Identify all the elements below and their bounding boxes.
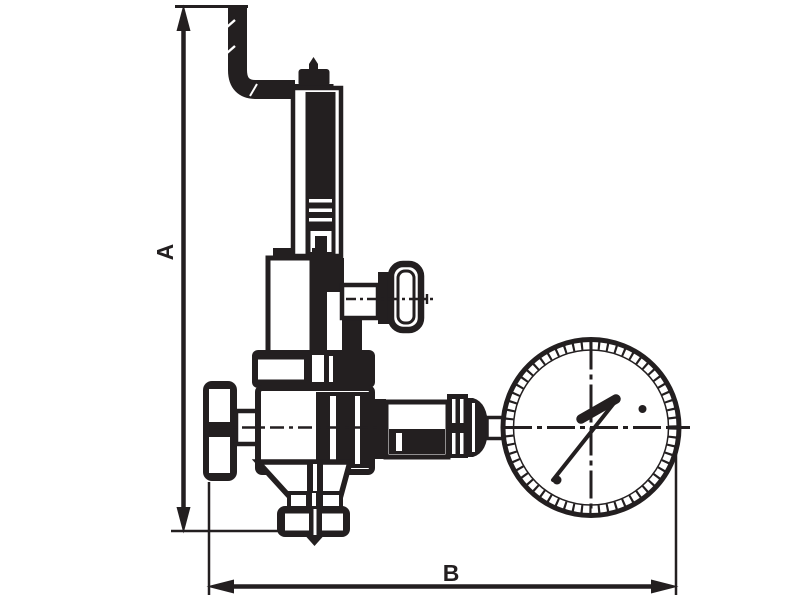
yoke-column — [312, 248, 327, 354]
drawing-canvas: A — [0, 0, 800, 598]
spring-coil-slit — [309, 199, 332, 203]
outlet-cap — [467, 398, 488, 457]
handle-neck — [342, 285, 378, 318]
yoke-lower-column — [342, 316, 362, 353]
flange-window — [258, 360, 304, 380]
union-window — [209, 437, 230, 473]
cap-slit — [472, 403, 475, 452]
mid-flange — [252, 350, 375, 388]
guide-block — [315, 236, 327, 248]
body-right-slit — [355, 396, 360, 464]
spring-housing — [293, 88, 341, 256]
cap-nut — [299, 69, 330, 86]
cylinder-slit — [396, 433, 402, 451]
nut-slit — [460, 433, 464, 454]
flange-slit — [312, 355, 324, 382]
nut-slit — [452, 399, 456, 423]
flange-stem-slit — [314, 509, 317, 535]
pipe-path — [238, 8, 296, 90]
spring-column — [306, 92, 336, 254]
dimension-b-label: B — [443, 560, 460, 586]
dial-marker-dot — [639, 405, 647, 413]
yoke-panel — [268, 258, 312, 354]
arrowhead-left — [207, 580, 235, 594]
outlet-nut — [447, 394, 468, 458]
outlet-union — [386, 394, 504, 458]
spring-coil-slit — [309, 218, 332, 222]
neck-stem-slit — [312, 493, 316, 507]
vent-pipe-elbow — [227, 8, 295, 96]
needle-counterweight — [553, 476, 562, 485]
body-taper — [258, 462, 350, 495]
nut-slit — [460, 399, 464, 423]
union-window — [209, 389, 230, 422]
t-knob-outer — [391, 264, 421, 330]
arrowhead-up — [177, 5, 191, 32]
taper-stem-slit — [313, 464, 317, 494]
inlet-union — [203, 381, 260, 481]
bottom-flange-assembly — [258, 462, 350, 546]
drain-tip — [306, 537, 323, 547]
arrowhead-right — [651, 580, 679, 594]
valve-technical-drawing: A — [0, 0, 800, 598]
pressure-gauge — [503, 340, 690, 516]
body-internal-slit — [330, 396, 336, 464]
flange-window — [285, 514, 309, 531]
side-handle — [342, 264, 433, 330]
flange-slit — [329, 356, 333, 382]
spring-coil-slit — [309, 209, 332, 213]
flange-window — [322, 514, 343, 531]
adjusting-stem-cap — [295, 57, 334, 90]
nut-slit — [452, 433, 456, 454]
arrowhead-down — [177, 507, 191, 534]
dimension-a-label: A — [152, 244, 178, 261]
